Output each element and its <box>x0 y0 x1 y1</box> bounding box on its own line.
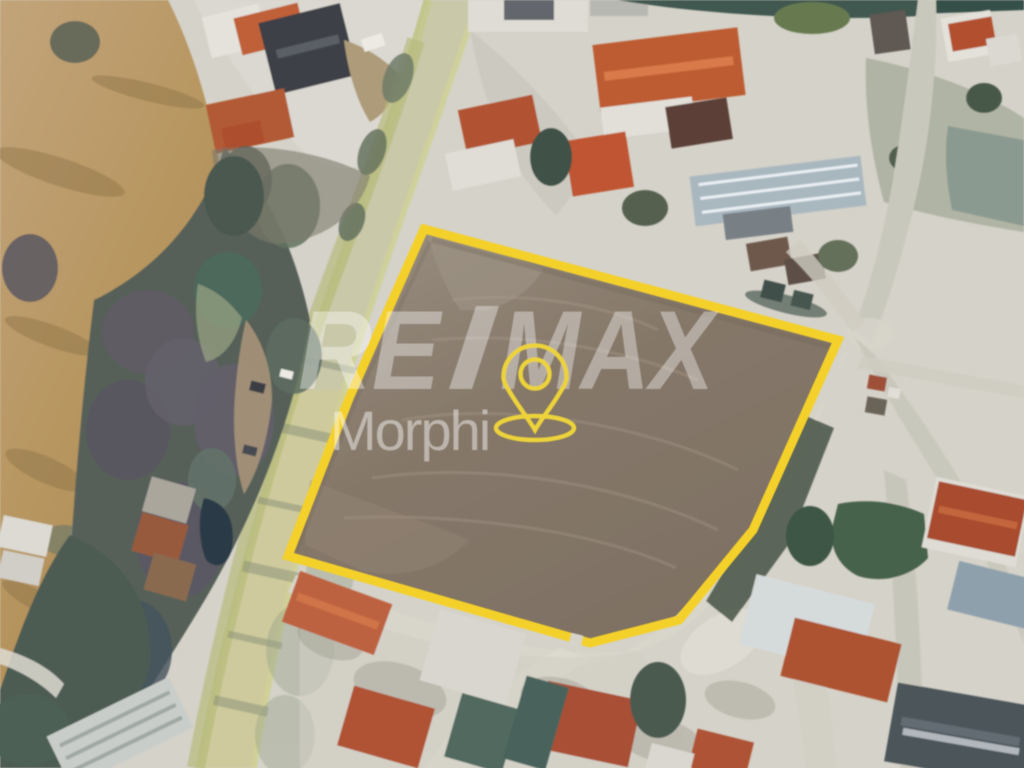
svg-text:Morphi: Morphi <box>330 399 489 462</box>
svg-text:RE: RE <box>298 288 443 413</box>
svg-text:MAX: MAX <box>500 288 719 413</box>
